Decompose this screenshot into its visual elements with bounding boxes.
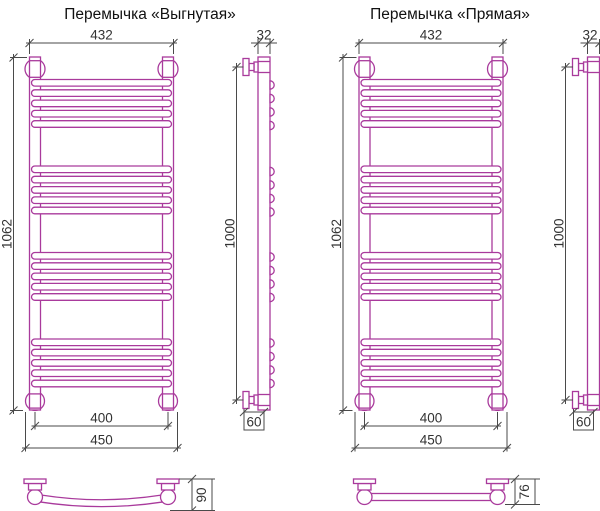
dim-label-crossbar-depth-straight: 76 (517, 484, 532, 499)
crossbar-top-view-straight (354, 479, 509, 505)
crossbar-top-view-curved (24, 479, 179, 507)
dim-label-height-total-curved: 1062 (0, 219, 15, 249)
technical-drawing-page: Перемычка «Выгнутая» 432 1062 (0, 0, 600, 511)
front-view-curved (25, 57, 178, 411)
dim-label-width-overall-straight: 450 (420, 433, 443, 448)
dim-label-tube-diameter-straight: 32 (582, 28, 597, 43)
dim-label-width-overall-curved: 450 (90, 433, 113, 448)
dim-label-mount-distance-curved: 1000 (223, 218, 238, 248)
dim-label-mount-distance-straight: 1000 (552, 218, 567, 248)
dim-label-crossbar-depth-curved: 90 (194, 487, 209, 502)
towel-rail-drawing: Перемычка «Выгнутая» 432 1062 (0, 0, 600, 511)
dim-label-width-axes-curved: 400 (90, 411, 113, 426)
dim-label-height-total-straight: 1062 (329, 219, 344, 249)
dim-label-wall-offset-curved: 60 (246, 415, 261, 430)
dim-label-width-axes-straight: 400 (420, 411, 443, 426)
straight-model: Перемычка «Прямая» 432 1062 400 (329, 6, 600, 509)
side-view-curved (243, 57, 274, 410)
title-curved: Перемычка «Выгнутая» (64, 6, 236, 23)
dim-label-tube-diameter-curved: 32 (256, 28, 271, 43)
dim-label-wall-offset-straight: 60 (576, 415, 591, 430)
dim-label-width-outer-straight: 432 (420, 28, 443, 43)
title-straight: Перемычка «Прямая» (370, 6, 530, 23)
front-view-straight (355, 57, 508, 411)
dim-label-width-outer-curved: 432 (90, 28, 113, 43)
side-view-straight (573, 57, 600, 410)
curved-model: Перемычка «Выгнутая» 432 1062 (0, 6, 277, 511)
